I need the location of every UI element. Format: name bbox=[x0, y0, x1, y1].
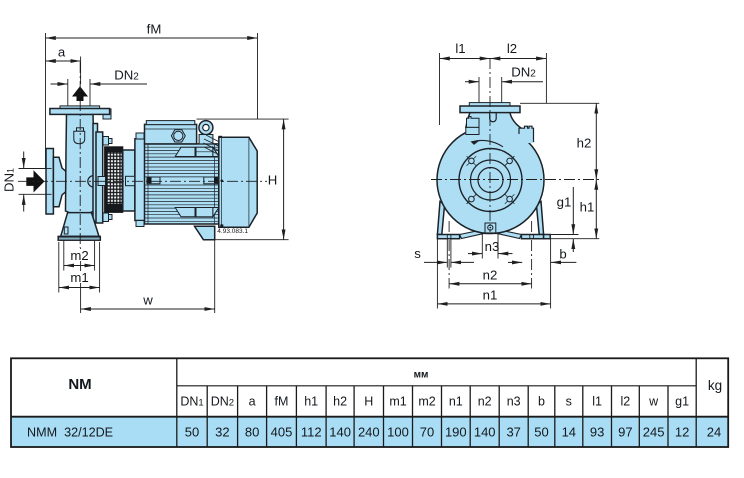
svg-text:H: H bbox=[364, 395, 373, 409]
svg-text:a: a bbox=[249, 395, 256, 409]
svg-text:DN1: DN1 bbox=[2, 168, 17, 192]
svg-text:NMM 32/12DE: NMM 32/12DE bbox=[27, 425, 113, 439]
svg-text:14: 14 bbox=[562, 424, 576, 439]
svg-text:24: 24 bbox=[707, 424, 721, 439]
svg-text:b: b bbox=[559, 247, 566, 262]
svg-text:l1: l1 bbox=[592, 395, 602, 409]
svg-text:100: 100 bbox=[387, 424, 409, 439]
svg-text:l2: l2 bbox=[507, 41, 517, 56]
svg-text:h1: h1 bbox=[304, 395, 318, 409]
svg-text:245: 245 bbox=[643, 424, 665, 439]
svg-text:h1: h1 bbox=[580, 200, 595, 215]
svg-text:DN2: DN2 bbox=[114, 68, 139, 83]
svg-text:w: w bbox=[648, 395, 659, 409]
svg-text:DN2: DN2 bbox=[511, 65, 536, 80]
svg-text:h2: h2 bbox=[577, 136, 592, 151]
svg-text:m1: m1 bbox=[70, 270, 88, 285]
svg-text:4.93.083.1: 4.93.083.1 bbox=[217, 228, 248, 235]
svg-text:fM: fM bbox=[275, 395, 289, 409]
svg-text:n1: n1 bbox=[483, 288, 498, 303]
svg-text:m2: m2 bbox=[418, 395, 435, 409]
svg-text:s: s bbox=[414, 246, 421, 261]
svg-text:n2: n2 bbox=[478, 395, 492, 409]
svg-text:H: H bbox=[268, 173, 278, 188]
svg-text:fM: fM bbox=[147, 22, 162, 37]
svg-text:w: w bbox=[142, 293, 153, 308]
svg-text:93: 93 bbox=[590, 424, 604, 439]
svg-text:a: a bbox=[58, 45, 66, 60]
svg-text:n1: n1 bbox=[449, 395, 463, 409]
svg-text:32: 32 bbox=[215, 424, 229, 439]
svg-text:g1: g1 bbox=[557, 195, 572, 210]
svg-text:l1: l1 bbox=[455, 41, 465, 56]
svg-text:n2: n2 bbox=[483, 268, 498, 283]
svg-text:l2: l2 bbox=[621, 395, 631, 409]
svg-text:112: 112 bbox=[301, 424, 322, 439]
svg-text:n3: n3 bbox=[485, 239, 500, 254]
svg-text:kg: kg bbox=[708, 378, 722, 393]
svg-text:240: 240 bbox=[358, 424, 380, 439]
svg-text:405: 405 bbox=[271, 424, 293, 439]
svg-text:12: 12 bbox=[675, 424, 689, 439]
svg-text:70: 70 bbox=[420, 424, 434, 439]
svg-text:m2: m2 bbox=[70, 248, 88, 263]
svg-text:DN2: DN2 bbox=[211, 395, 234, 409]
svg-text:m1: m1 bbox=[389, 395, 406, 409]
svg-text:37: 37 bbox=[506, 424, 520, 439]
svg-text:s: s bbox=[566, 395, 572, 409]
svg-text:h2: h2 bbox=[333, 395, 347, 409]
svg-text:NM: NM bbox=[68, 376, 91, 393]
svg-text:DN1: DN1 bbox=[180, 395, 203, 409]
svg-text:g1: g1 bbox=[675, 395, 689, 409]
svg-text:97: 97 bbox=[618, 424, 632, 439]
svg-text:80: 80 bbox=[245, 424, 259, 439]
svg-text:190: 190 bbox=[445, 424, 467, 439]
svg-text:140: 140 bbox=[474, 424, 496, 439]
svg-text:n3: n3 bbox=[507, 395, 521, 409]
svg-text:50: 50 bbox=[185, 424, 199, 439]
svg-text:b: b bbox=[538, 395, 545, 409]
svg-text:140: 140 bbox=[329, 424, 351, 439]
svg-text:мм: мм bbox=[414, 370, 429, 381]
svg-text:50: 50 bbox=[534, 424, 548, 439]
